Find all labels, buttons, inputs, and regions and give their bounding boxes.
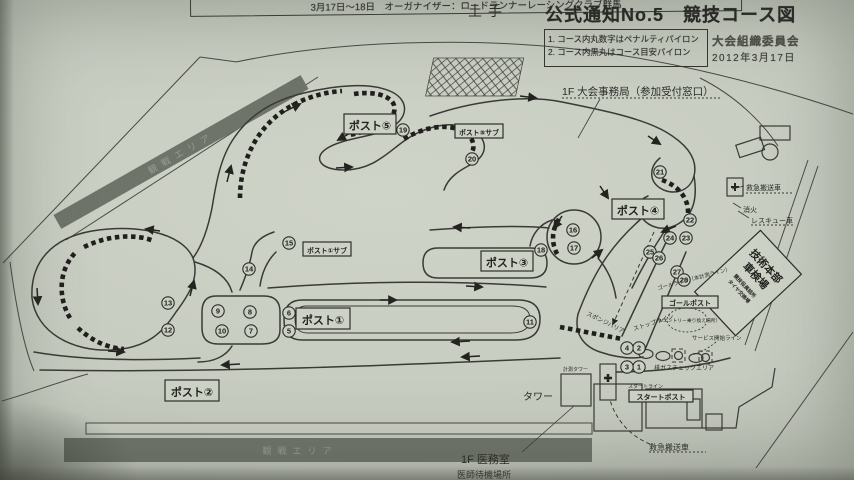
penalty-pylon-8: 8: [244, 306, 256, 318]
fence: [86, 423, 592, 434]
legend-box: 1. コース内丸数字はペナルティパイロン 2. コース内黒丸はコース目安パイロン: [544, 29, 708, 67]
post-label: ポスト②: [165, 380, 219, 401]
direction-arrows: [37, 96, 676, 365]
course-map-svg: 観戦エリア: [0, 0, 854, 480]
svg-text:1: 1: [637, 363, 641, 372]
post-label: ポスト①: [296, 308, 350, 329]
svg-text:3: 3: [625, 363, 629, 372]
svg-text:ポスト①サブ: ポスト①サブ: [307, 246, 347, 255]
svg-text:17: 17: [570, 244, 578, 253]
penalty-pylon-26: 26: [653, 252, 665, 264]
penalty-pylon-4: 4: [621, 342, 633, 354]
svg-text:7: 7: [249, 327, 253, 336]
penalty-pylon-21: 21: [654, 166, 666, 178]
svg-text:9: 9: [216, 307, 220, 316]
spectator-strip-bottom-label: 観戦エリア: [262, 445, 337, 456]
penalty-pylon-3: 3: [621, 361, 633, 373]
svg-text:2: 2: [637, 344, 641, 353]
svg-text:ゴールポスト: ゴールポスト: [669, 299, 711, 308]
svg-text:22: 22: [686, 216, 694, 225]
svg-text:ポスト①: ポスト①: [302, 313, 344, 327]
date-label: 2012年3月17日: [712, 49, 796, 64]
penalty-pylon-12: 12: [162, 324, 174, 336]
svg-text:24: 24: [666, 234, 675, 243]
ambulance-label-bottom: 救急搬送車: [649, 442, 689, 452]
svg-text:10: 10: [218, 327, 226, 336]
penalty-pylon-22: 22: [684, 214, 696, 226]
page-title: 公式通知No.5 競技コース図: [545, 1, 796, 27]
penalty-pylon-6: 6: [283, 307, 295, 319]
hatched-area: [426, 58, 524, 96]
penalty-pylon-10: 10: [216, 325, 228, 337]
fire-label: 消火: [743, 205, 757, 214]
penalty-pylon-19: 19: [397, 124, 409, 136]
post-label: スタートポスト: [629, 390, 693, 402]
w-entry-label: （Wエントリー乗り換え場所）: [654, 317, 721, 324]
medical-cross-icon: [604, 374, 612, 382]
grid-marker: [656, 352, 670, 361]
svg-text:ポスト⑤: ポスト⑤: [349, 118, 391, 132]
committee-label: 大会組織委員会: [712, 33, 800, 49]
svg-text:ポスト⑤サブ: ポスト⑤サブ: [459, 128, 499, 137]
penalty-pylon-9: 9: [212, 305, 224, 317]
penalty-pylon-24: 24: [664, 232, 676, 244]
svg-text:26: 26: [655, 254, 663, 263]
svg-text:23: 23: [682, 234, 690, 243]
doctor-standby-label: 医師待機場所: [457, 469, 511, 480]
timing-tower-label: 計測タワー: [563, 366, 588, 373]
svg-text:15: 15: [285, 239, 293, 248]
penalty-pylon-20: 20: [466, 153, 478, 165]
svg-text:16: 16: [569, 226, 577, 235]
penalty-pylon-5: 5: [283, 325, 295, 337]
office-label: 1F 大会事務局（参加受付窓口）: [562, 85, 714, 98]
svg-text:20: 20: [468, 155, 476, 164]
penalty-pylon-13: 13: [162, 297, 174, 309]
svg-text:19: 19: [399, 126, 407, 135]
penalty-pylon-1: 1: [633, 361, 645, 373]
grid-check-box: [672, 349, 685, 362]
spectator-strip-diagonal: 観戦エリア: [53, 75, 308, 229]
service-line-label: サービス開始ライン: [692, 334, 742, 342]
penalty-pylon-16: 16: [567, 224, 579, 236]
tower-box: [561, 374, 591, 406]
svg-text:18: 18: [537, 246, 545, 255]
exhaust-check-label: 排ガスチェックエリア: [654, 364, 714, 372]
spectator-strip-diagonal-label: 観戦エリア: [146, 129, 217, 176]
penalty-pylon-18: 18: [535, 244, 547, 256]
penalty-pylon-7: 7: [245, 325, 257, 337]
spectator-strip-bottom: 観戦エリア: [64, 423, 592, 462]
legend-line1: 1. コース内丸数字はペナルティパイロン: [548, 33, 705, 46]
start-line-label: スタートライン: [628, 383, 663, 390]
svg-text:8: 8: [248, 308, 252, 317]
svg-text:ポスト③: ポスト③: [486, 255, 528, 269]
ambulance-label: 救急搬送車: [746, 183, 781, 192]
post-label: ゴールポスト: [662, 296, 718, 308]
svg-text:13: 13: [164, 299, 172, 308]
post-label: ポスト④: [612, 199, 664, 219]
post-label: ポスト③: [481, 251, 533, 271]
fire-hydrant-icon: [762, 144, 778, 160]
penalty-pylon-11: 11: [524, 316, 536, 328]
post-label: ポスト⑤: [344, 114, 396, 134]
svg-text:11: 11: [526, 318, 534, 327]
penalty-pylon-23: 23: [680, 232, 692, 244]
penalty-pylon-14: 14: [243, 263, 255, 275]
penalty-pylon-15: 15: [283, 237, 295, 249]
sponge-barrier-label: スポンジバリア: [585, 310, 626, 335]
svg-text:スタートポスト: スタートポスト: [637, 393, 686, 402]
svg-text:21: 21: [656, 168, 664, 177]
svg-text:5: 5: [287, 327, 291, 336]
penalty-pylon-2: 2: [633, 342, 645, 354]
svg-text:ポスト④: ポスト④: [617, 203, 659, 217]
post-label: ポスト①サブ: [303, 242, 351, 256]
course-map-photo: 観戦エリア: [0, 0, 854, 480]
penalty-pylon-17: 17: [568, 242, 580, 254]
medical-room-label: 1F 医務室: [461, 452, 510, 466]
svg-text:6: 6: [287, 309, 291, 318]
rescue-label: レスキュー車: [751, 216, 793, 225]
tower-label: タワー: [523, 391, 553, 403]
post-label: ポスト⑤サブ: [455, 124, 503, 138]
legend-line2: 2. コース内黒丸はコース目安パイロン: [548, 46, 705, 59]
svg-text:ポスト②: ポスト②: [171, 385, 213, 399]
site-boundary-lines: [2, 42, 853, 468]
svg-text:12: 12: [164, 326, 172, 335]
svg-text:14: 14: [245, 265, 254, 274]
